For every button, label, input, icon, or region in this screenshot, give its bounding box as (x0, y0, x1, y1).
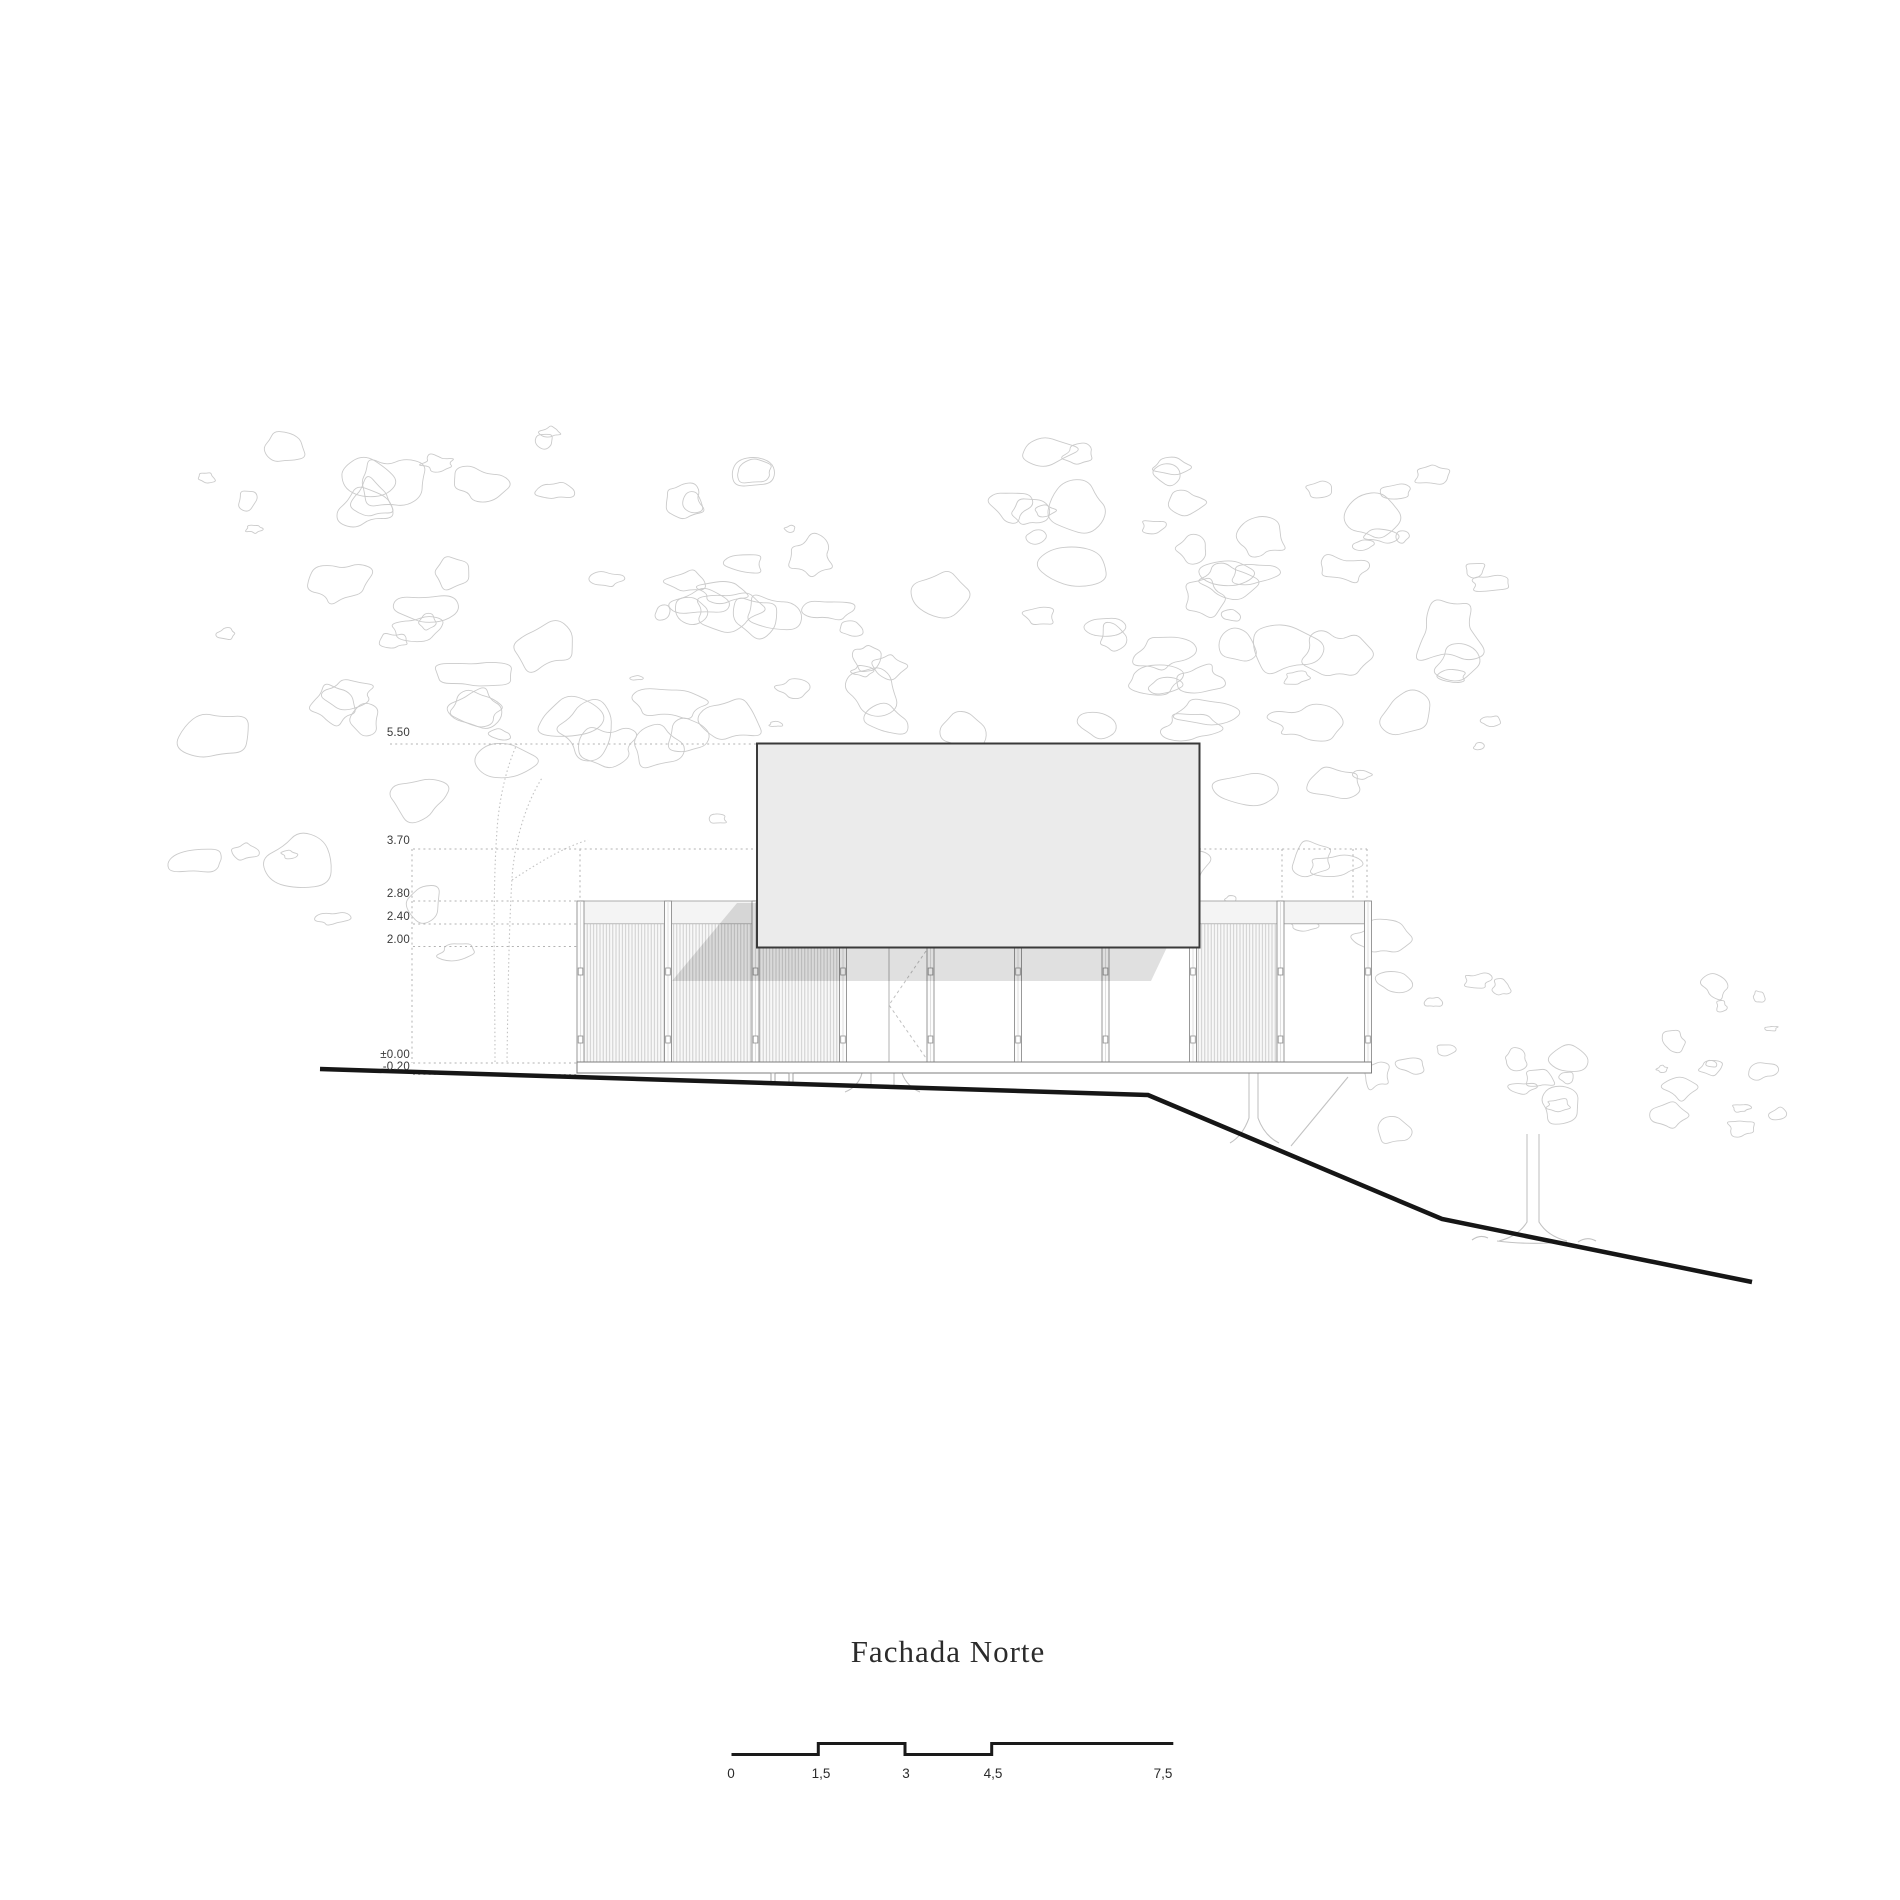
scale-label-7-5: 7,5 (1154, 1766, 1173, 1781)
drawing-title: Fachada Norte (748, 1634, 1148, 1670)
left-tree-trunk-dotted (494, 744, 517, 1062)
roof-volume (757, 744, 1200, 948)
scale-label-4-5: 4,5 (984, 1766, 1003, 1781)
ground-line (320, 1069, 1752, 1282)
far-right-tree-trunk (1499, 1134, 1567, 1241)
scale-label-3: 3 (902, 1766, 910, 1781)
scale-label-1-5: 1,5 (812, 1766, 831, 1781)
level-label-2-80: 2.80 (310, 888, 410, 900)
north-facade-elevation (0, 0, 1900, 1900)
level-label-minus-0-20: -0.20 (310, 1061, 410, 1073)
level-label-3-70: 3.70 (310, 835, 410, 847)
elevation-drawing-sheet: 5.50 3.70 2.80 2.40 2.00 ±0.00 -0.20 Fac… (0, 0, 1900, 1900)
floor-slab-edge (577, 1062, 1372, 1073)
level-label-5-50: 5.50 (310, 727, 410, 739)
level-label-2-40: 2.40 (310, 911, 410, 923)
scale-label-0: 0 (727, 1766, 735, 1781)
leaning-branch (1291, 1077, 1348, 1146)
level-label-0-00: ±0.00 (310, 1049, 410, 1061)
level-label-2-00: 2.00 (310, 934, 410, 946)
left-tree-branch-dotted (512, 840, 588, 880)
scale-bar (732, 1744, 1174, 1755)
left-tree-trunk-dotted-2 (507, 778, 542, 1062)
